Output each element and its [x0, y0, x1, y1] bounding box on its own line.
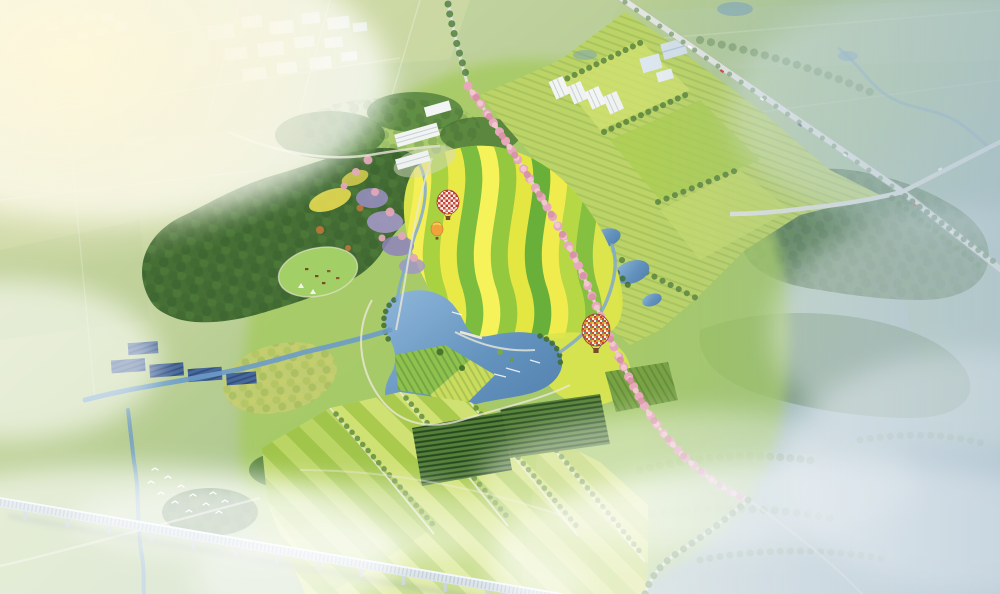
rendering-canvas: [0, 0, 1000, 594]
aerial-masterplan-rendering: [0, 0, 1000, 594]
lake-islet: [497, 349, 503, 355]
lake-islet: [510, 358, 514, 362]
distance-blue-tint: [640, 0, 1000, 594]
balloon-basket: [593, 348, 598, 353]
farm-pond: [573, 50, 597, 60]
balloon-basket: [446, 216, 450, 220]
